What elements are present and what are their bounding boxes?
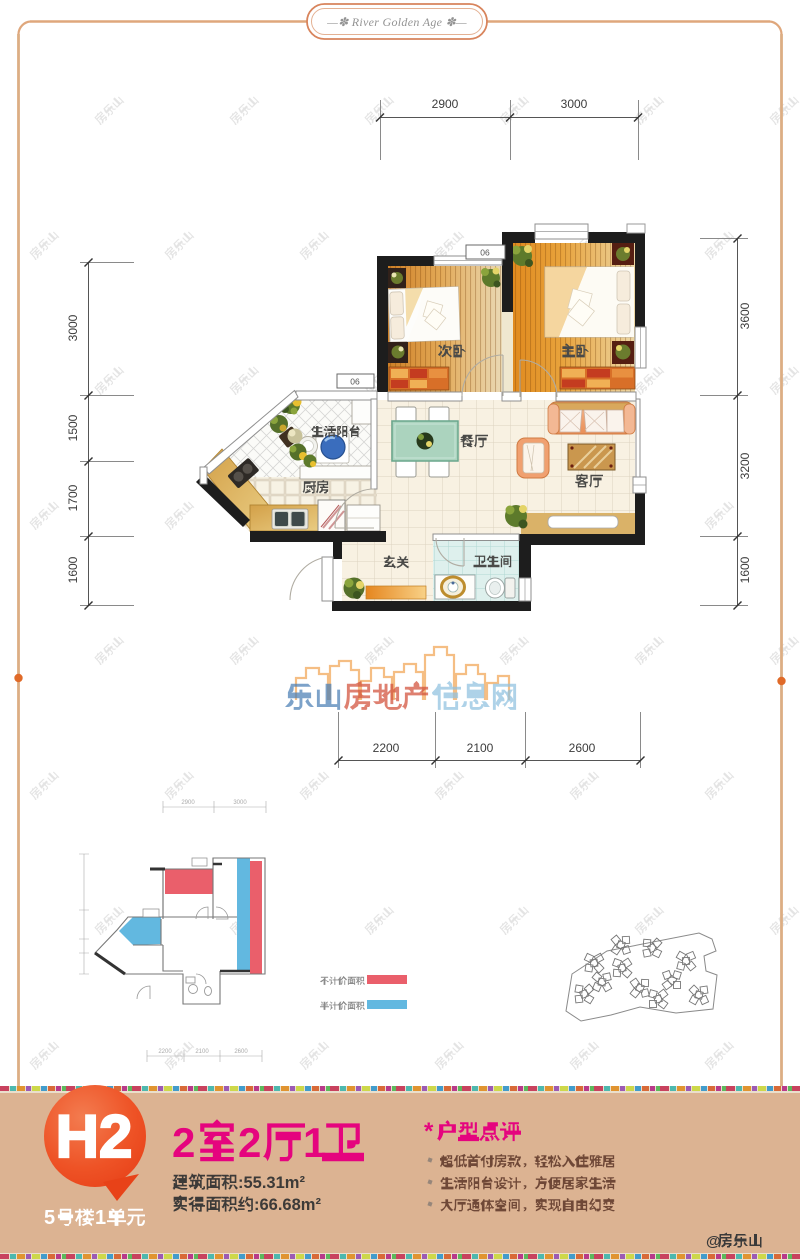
svg-text:1600: 1600: [738, 556, 752, 583]
svg-text:3000: 3000: [66, 314, 80, 341]
svg-text:3200: 3200: [738, 452, 752, 479]
svg-text:2200: 2200: [158, 1049, 172, 1055]
svg-text:—✽ River Golden Age ✽—: —✽ River Golden Age ✽—: [326, 15, 467, 29]
svg-text:3000: 3000: [233, 800, 247, 806]
svg-text:2600: 2600: [569, 741, 596, 755]
svg-text:2200: 2200: [373, 741, 400, 755]
svg-text:2100: 2100: [467, 741, 494, 755]
svg-text:3000: 3000: [561, 97, 588, 111]
svg-text::55.31m²: :55.31m²: [238, 1174, 305, 1192]
svg-text:@: @: [706, 1233, 721, 1250]
svg-text:06: 06: [480, 248, 490, 258]
svg-text:2600: 2600: [234, 1049, 248, 1055]
svg-text:1500: 1500: [66, 414, 80, 441]
svg-text:*: *: [424, 1118, 434, 1145]
svg-text:2900: 2900: [432, 97, 459, 111]
svg-text:5: 5: [44, 1207, 55, 1229]
svg-text:3600: 3600: [738, 302, 752, 329]
svg-text:2100: 2100: [195, 1049, 209, 1055]
svg-text:1700: 1700: [66, 484, 80, 511]
svg-text:1600: 1600: [66, 556, 80, 583]
svg-text:2: 2: [172, 1119, 195, 1166]
svg-text:1: 1: [95, 1207, 106, 1229]
svg-text::66.68m²: :66.68m²: [254, 1196, 321, 1214]
svg-text:06: 06: [350, 377, 360, 387]
svg-text:2: 2: [238, 1119, 261, 1166]
svg-text:2900: 2900: [181, 800, 195, 806]
svg-text:H2: H2: [56, 1103, 133, 1170]
